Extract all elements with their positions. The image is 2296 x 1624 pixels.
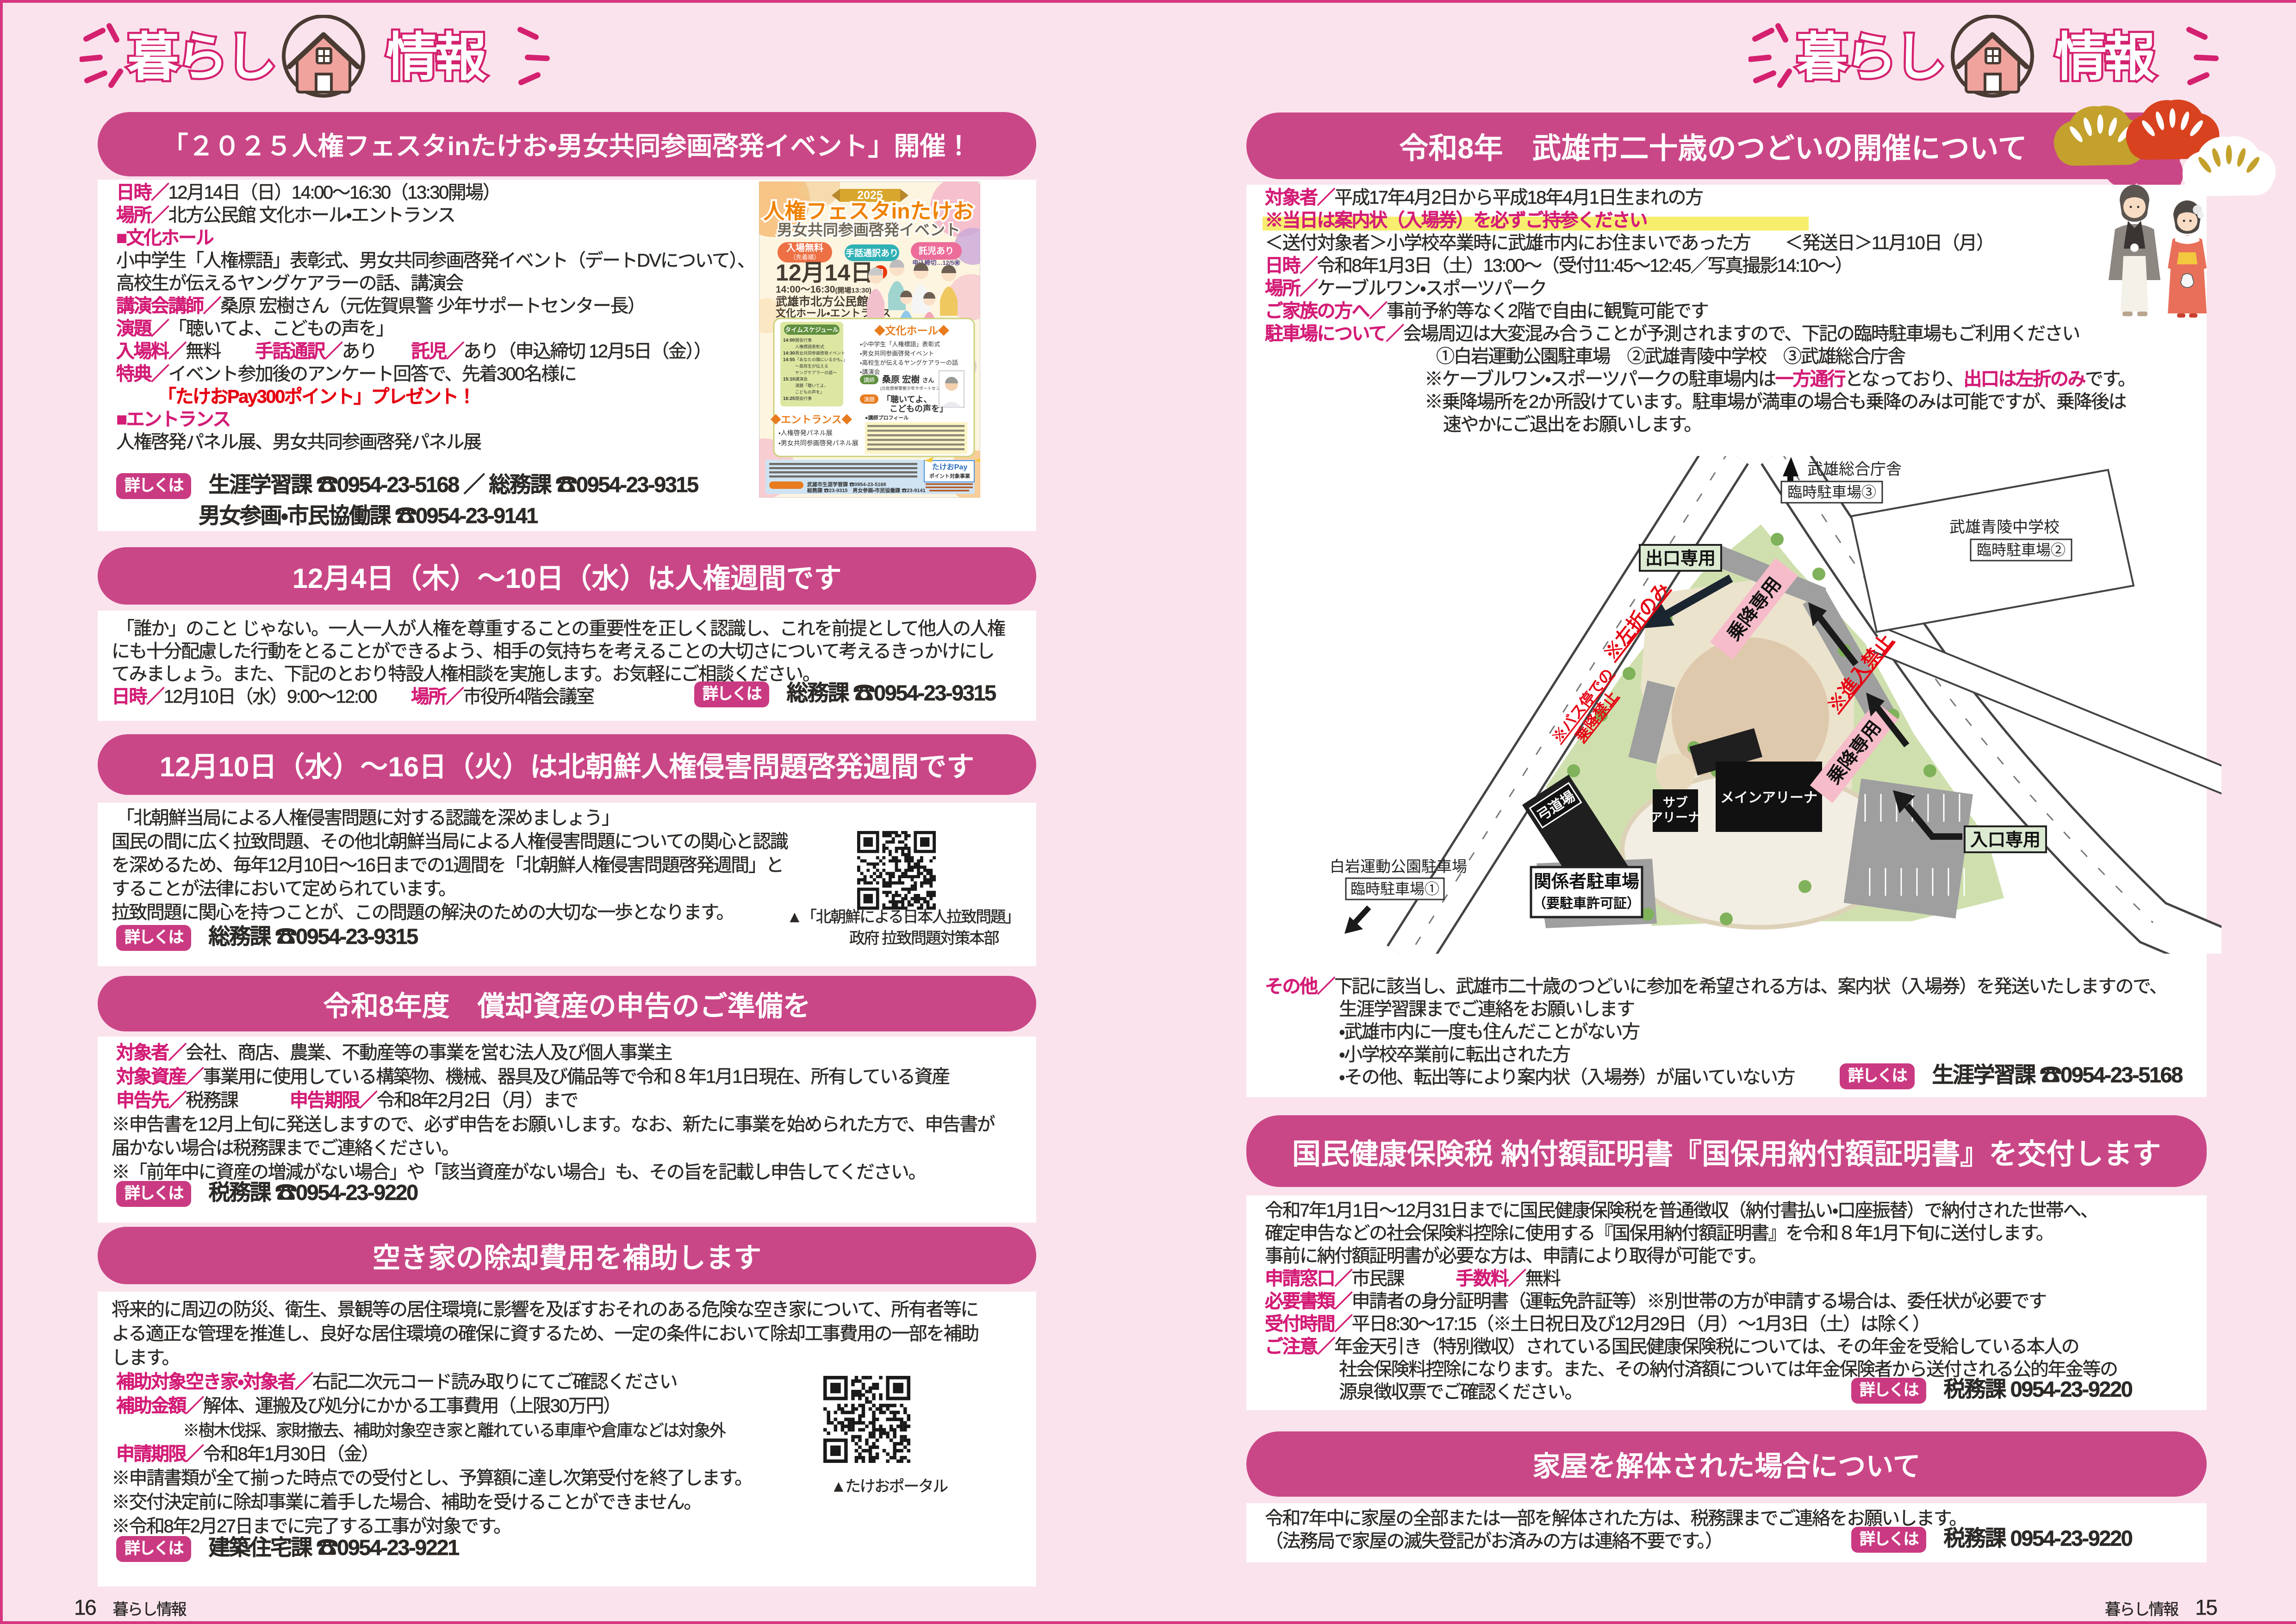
- svg-text:サブ: サブ: [1663, 795, 1688, 810]
- svg-text:こどもの声を」: こどもの声を」: [795, 389, 824, 394]
- svg-text:こどもの声を」: こどもの声を」: [890, 404, 948, 413]
- svg-text:男女共同参画啓発イベント: 男女共同参画啓発イベント: [777, 221, 960, 238]
- svg-text:「あなたの隣にいるかも。」: 「あなたの隣にいるかも。」: [795, 357, 847, 362]
- svg-text:・男女共同参画啓発パネル展: ・男女共同参画啓発パネル展: [778, 439, 859, 447]
- svg-text:●講師プロフィール: ●講師プロフィール: [865, 414, 908, 421]
- svg-text:武雄総合庁舎: 武雄総合庁舎: [1807, 461, 1902, 478]
- svg-text:情報: 情報: [2055, 28, 2156, 86]
- svg-text:人権フェスタinたけお: 人権フェスタinたけお: [764, 199, 974, 223]
- svg-text:「聴いてよ、: 「聴いてよ、: [882, 394, 932, 404]
- svg-text:演題「聴いてよ、: 演題「聴いてよ、: [795, 383, 828, 388]
- svg-text:臨時駐車場②: 臨時駐車場②: [1977, 542, 2066, 558]
- svg-text:ポイント対象事業: ポイント対象事業: [929, 473, 971, 479]
- svg-text:関係者駐車場: 関係者駐車場: [1534, 872, 1639, 892]
- svg-text:白岩運動公園駐車場: 白岩運動公園駐車場: [1330, 858, 1467, 875]
- svg-text:15:10: 15:10: [783, 377, 795, 382]
- svg-text:タイムスケジュール: タイムスケジュール: [785, 326, 839, 333]
- svg-text:演題: 演題: [864, 396, 875, 403]
- svg-text:〜高校生が伝える: 〜高校生が伝える: [795, 363, 828, 369]
- svg-text:情報: 情報: [386, 28, 487, 86]
- svg-text:暮らし: 暮らし: [127, 28, 274, 86]
- svg-text:臨時駐車場③: 臨時駐車場③: [1787, 484, 1876, 500]
- svg-text:男女共同参画啓発イベント: 男女共同参画啓発イベント: [795, 350, 845, 356]
- svg-text:・小中学生「人権標語」表彰式: ・小中学生「人権標語」表彰式: [860, 341, 940, 348]
- svg-text:・人権啓発パネル展: ・人権啓発パネル展: [778, 429, 833, 437]
- svg-text:講演会: 講演会: [795, 376, 808, 381]
- svg-text:武雄市北方公民館: 武雄市北方公民館: [776, 295, 868, 308]
- svg-text:14:55: 14:55: [783, 357, 795, 362]
- svg-text:（要駐車許可証）: （要駐車許可証）: [1533, 895, 1640, 911]
- svg-text:閉会行事: 閉会行事: [795, 396, 812, 401]
- svg-text:入場無料: 入場無料: [786, 242, 823, 253]
- svg-text:臨時駐車場①: 臨時駐車場①: [1350, 881, 1439, 897]
- svg-text:出口専用: 出口専用: [1645, 549, 1716, 568]
- svg-text:・男女共同参画啓発イベント: ・男女共同参画啓発イベント: [860, 350, 934, 357]
- svg-text:武雄青陵中学校: 武雄青陵中学校: [1949, 518, 2060, 536]
- svg-text:アリーナ: アリーナ: [1650, 811, 1700, 824]
- svg-text:暮らし: 暮らし: [1796, 28, 1943, 86]
- svg-text:16:25: 16:25: [783, 396, 795, 401]
- svg-text:開会行事: 開会行事: [795, 337, 812, 343]
- svg-text:手話通訳あり: 手話通訳あり: [846, 248, 898, 258]
- svg-text:ヤングケアラーの話〜: ヤングケアラーの話〜: [795, 370, 837, 375]
- svg-text:12月14日: 12月14日: [776, 260, 873, 286]
- svg-text:・高校生が伝えるヤングケアラーの話: ・高校生が伝えるヤングケアラーの話: [860, 359, 958, 366]
- svg-text:総務課 ☎23-9315 男女参画・市民協働課 ☎23-91: 総務課 ☎23-9315 男女参画・市民協働課 ☎23-9141: [807, 487, 926, 493]
- svg-text:◆エントランス◆: ◆エントランス◆: [770, 414, 852, 425]
- svg-text:メインアリーナ: メインアリーナ: [1720, 790, 1817, 806]
- svg-text:・講演会: ・講演会: [860, 369, 880, 375]
- svg-text:人権標語表彰式: 人権標語表彰式: [795, 344, 824, 349]
- svg-text:講師: 講師: [864, 377, 875, 383]
- svg-text:14:30: 14:30: [783, 351, 795, 356]
- svg-text:たけおPay: たけおPay: [932, 463, 968, 471]
- svg-text:14:00: 14:00: [783, 338, 795, 343]
- svg-text:◆文化ホール◆: ◆文化ホール◆: [874, 325, 950, 337]
- svg-text:武雄市生涯学習課 ☎0954-23-5168: 武雄市生涯学習課 ☎0954-23-5168: [807, 481, 886, 487]
- svg-text:入口専用: 入口専用: [1970, 831, 2041, 850]
- svg-text:託児あり: 託児あり: [919, 246, 954, 256]
